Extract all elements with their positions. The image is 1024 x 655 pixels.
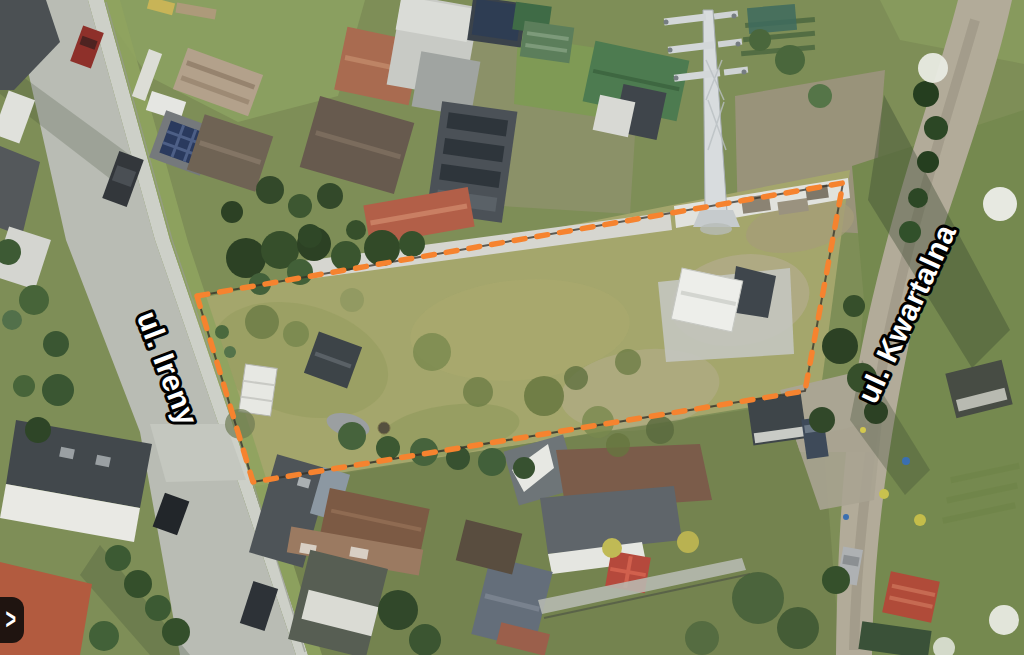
tree-meadow: [463, 377, 493, 407]
spruce: [899, 221, 921, 243]
tree-garden: [338, 422, 366, 450]
spruce: [908, 188, 928, 208]
chevron-right-icon: >: [5, 602, 16, 637]
barrel-blue: [902, 457, 910, 465]
firepit: [378, 422, 390, 434]
tree-dark: [843, 295, 865, 317]
insulator: [664, 20, 669, 25]
tree-bare: [340, 288, 364, 312]
insulator: [668, 48, 673, 53]
tree-meadow: [283, 321, 309, 347]
aerial-map: ul. Ireny ul. Kwartalna >: [0, 0, 1024, 655]
hedge: [162, 618, 190, 646]
bush-yellow: [602, 538, 622, 558]
figure: [860, 427, 866, 433]
tree-conifer: [399, 231, 425, 257]
expand-panel-button[interactable]: >: [0, 597, 24, 643]
tree-conifer: [409, 624, 441, 655]
spruce: [913, 81, 939, 107]
tree-blossom: [918, 53, 948, 83]
tree-large: [777, 607, 819, 649]
tree: [43, 331, 69, 357]
forsythia-bush: [914, 514, 926, 526]
tree: [2, 310, 22, 330]
spruce: [924, 116, 948, 140]
tree-meadow: [646, 416, 674, 444]
tree-meadow: [564, 366, 588, 390]
spruce: [917, 151, 939, 173]
tree-conifer: [256, 176, 284, 204]
tree: [19, 285, 49, 315]
tree-conifer: [298, 224, 322, 248]
insulator: [674, 76, 679, 81]
tree: [13, 375, 35, 397]
tree-garden: [376, 436, 400, 460]
bush: [224, 346, 236, 358]
net-structure: [747, 4, 797, 34]
bush: [215, 325, 229, 339]
tree-garden: [478, 448, 506, 476]
tree: [749, 29, 771, 51]
bush-yellow: [677, 531, 699, 553]
tree-conifer: [288, 194, 312, 218]
tree-meadow: [615, 349, 641, 375]
tree-meadow: [245, 305, 279, 339]
tree-dark: [822, 328, 858, 364]
tree-conifer: [226, 238, 266, 278]
tree-meadow: [524, 376, 564, 416]
tree-conifer: [346, 220, 366, 240]
tree-blossom: [983, 187, 1017, 221]
tree-blossom: [989, 605, 1019, 635]
tree-large: [822, 566, 850, 594]
tree-large: [732, 572, 784, 624]
tree-conifer: [378, 590, 418, 630]
tree: [25, 417, 51, 443]
container-white: [239, 364, 277, 416]
tree-dark: [809, 407, 835, 433]
tree-garden: [513, 457, 535, 479]
greenhouse: [520, 21, 575, 64]
tree: [775, 45, 805, 75]
forsythia-bush: [879, 489, 889, 499]
pylon-pad: [700, 223, 732, 235]
building-white-small: [593, 95, 636, 138]
hedge: [89, 621, 119, 651]
tree: [42, 374, 74, 406]
tree: [808, 84, 832, 108]
tree-meadow: [413, 333, 451, 371]
tree-conifer: [317, 183, 343, 209]
barrel-blue: [843, 514, 849, 520]
tree-large: [685, 621, 719, 655]
insulator: [736, 42, 741, 47]
insulator: [742, 70, 747, 75]
hedge: [105, 545, 131, 571]
tree-meadow: [606, 433, 630, 457]
satellite-view: ul. Ireny ul. Kwartalna: [0, 0, 1024, 655]
hedge: [124, 570, 152, 598]
insulator: [732, 14, 737, 19]
tree-conifer: [221, 201, 243, 223]
hedge: [145, 595, 171, 621]
